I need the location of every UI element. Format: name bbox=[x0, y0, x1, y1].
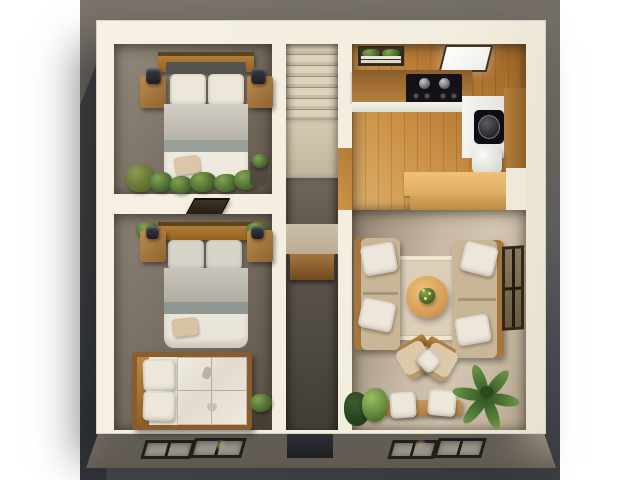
table-lamp-left bbox=[146, 226, 159, 239]
sofa-pillow bbox=[454, 313, 492, 346]
counter-light-strip bbox=[352, 102, 474, 112]
table-lamp-right bbox=[251, 68, 266, 84]
cooktop-knob bbox=[439, 78, 450, 89]
kitchen-sink bbox=[474, 110, 504, 144]
daybed-frame bbox=[132, 352, 252, 430]
window-bar bbox=[512, 249, 515, 327]
palm-plant bbox=[452, 362, 520, 432]
kitchen-window bbox=[358, 46, 404, 66]
floor-plan-scene bbox=[0, 0, 640, 480]
room-living bbox=[352, 210, 526, 430]
bed-pillow-right bbox=[208, 74, 244, 106]
sofa-pillow bbox=[459, 240, 499, 277]
facade-window-glow bbox=[213, 440, 229, 450]
entry-door bbox=[287, 434, 333, 458]
staircase bbox=[286, 44, 338, 120]
bed-blanket bbox=[164, 104, 248, 142]
glazed-panel-line bbox=[211, 357, 212, 425]
bed-blanket bbox=[164, 268, 248, 304]
sofa-right bbox=[452, 240, 504, 358]
burner bbox=[424, 93, 430, 99]
sofa-left bbox=[354, 238, 400, 350]
kitchen-floor-opening bbox=[338, 148, 352, 210]
living-window bbox=[502, 245, 524, 331]
glazed-panel bbox=[177, 357, 247, 425]
sofa-pillow bbox=[360, 241, 399, 276]
plant bbox=[150, 172, 172, 192]
bed-head-throw bbox=[166, 62, 246, 74]
hallway bbox=[286, 178, 338, 430]
cooktop bbox=[406, 74, 462, 104]
window-sill bbox=[361, 56, 401, 59]
bench-cushion bbox=[389, 391, 417, 419]
burner bbox=[413, 93, 419, 99]
glazed-panel-line bbox=[177, 390, 247, 391]
wall-stub bbox=[506, 168, 526, 212]
sink-basin bbox=[478, 115, 500, 139]
plant bbox=[170, 176, 192, 194]
bed-pillow-left bbox=[170, 74, 206, 106]
bed-pillow-left bbox=[168, 240, 204, 270]
burner bbox=[440, 93, 446, 99]
bed-headboard bbox=[158, 222, 254, 240]
facade-window-glow bbox=[413, 440, 429, 450]
coffee-table bbox=[406, 276, 448, 318]
flower bbox=[424, 297, 427, 300]
window-sill bbox=[361, 60, 401, 63]
breakfast-bar-top bbox=[404, 172, 506, 196]
bench bbox=[384, 392, 462, 424]
bed-pillow-right bbox=[206, 240, 242, 270]
daybed-cushion bbox=[142, 390, 175, 421]
cooktop-knob bbox=[419, 78, 430, 89]
fixture bbox=[207, 403, 217, 411]
stair-landing bbox=[286, 120, 338, 178]
flower bbox=[428, 292, 431, 295]
burner bbox=[451, 93, 457, 99]
hallway-light-floor bbox=[286, 224, 338, 254]
table-lamp-left bbox=[146, 68, 161, 84]
daybed-cushion bbox=[142, 358, 175, 391]
sofa-seat-line bbox=[363, 292, 398, 295]
accent-pillow bbox=[171, 317, 199, 338]
front-facade bbox=[86, 434, 556, 468]
plant bbox=[190, 172, 216, 192]
sofa-pillow bbox=[357, 297, 396, 333]
hallway-shelf bbox=[290, 254, 334, 280]
room-bedroom-2 bbox=[114, 214, 272, 430]
palm-center bbox=[480, 386, 494, 398]
sofa-seat-line bbox=[458, 298, 496, 301]
kitchen-skylight bbox=[439, 45, 494, 72]
flower bbox=[422, 289, 425, 292]
facade-window bbox=[433, 438, 487, 458]
facade-window bbox=[140, 440, 195, 459]
lounge-chair bbox=[398, 334, 456, 386]
room-bedroom-1 bbox=[114, 44, 272, 194]
table-lamp-right bbox=[251, 226, 264, 239]
